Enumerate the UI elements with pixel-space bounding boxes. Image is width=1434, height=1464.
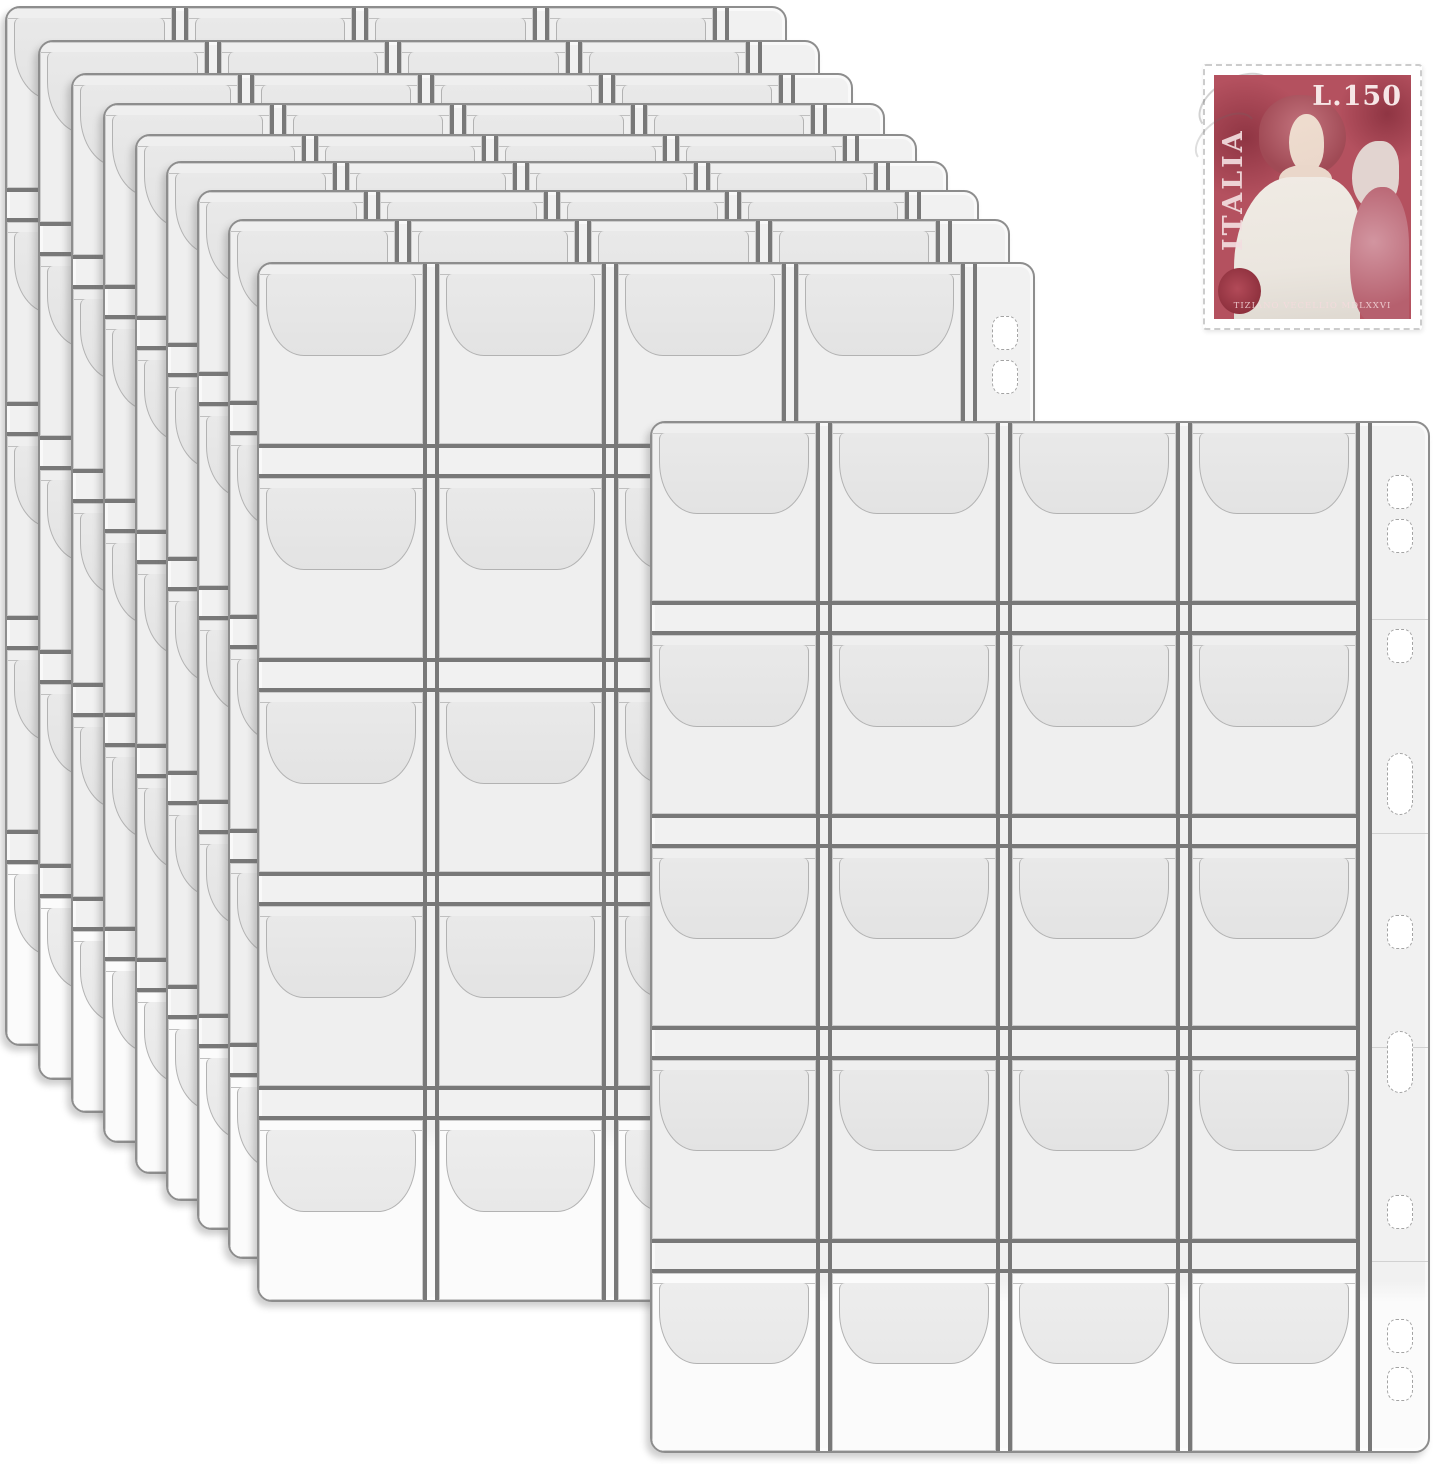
strip-seam [1372, 619, 1428, 620]
pocket [618, 264, 782, 444]
column-divider [996, 423, 1012, 1451]
column-divider [1176, 423, 1192, 1451]
pocket [1192, 848, 1356, 1026]
punch-hole [1387, 753, 1413, 815]
pocket-flap [266, 702, 416, 784]
pocket [439, 478, 603, 658]
column-divider [602, 264, 618, 1300]
italy-postage-stamp: ITALIA L.150 TIZIANO VECELLIO MDLXXVI [1203, 64, 1422, 330]
row-divider [652, 1239, 1356, 1273]
pocket-flap [446, 702, 596, 784]
pocket-flap [266, 274, 416, 356]
pocket [1012, 848, 1176, 1026]
pocket [259, 692, 423, 872]
pocket-flap [839, 645, 989, 726]
pocket [832, 635, 996, 813]
pocket-flap [446, 274, 596, 356]
pocket [832, 1060, 996, 1238]
pocket [259, 264, 423, 444]
pocket-flap [659, 433, 809, 514]
pocket [652, 1060, 816, 1238]
pocket [1012, 1273, 1176, 1451]
stamp-artwork: ITALIA L.150 TIZIANO VECELLIO MDLXXVI [1214, 75, 1411, 319]
pocket-flap [839, 433, 989, 514]
pocket [439, 264, 603, 444]
column-divider [423, 264, 439, 1300]
pocket-flap [1019, 433, 1169, 514]
pocket-flap [1199, 858, 1349, 939]
pocket [832, 848, 996, 1026]
punch-hole [1387, 519, 1413, 553]
pocket-page [650, 421, 1430, 1453]
pocket-flap [625, 274, 775, 356]
pocket-flap [1019, 858, 1169, 939]
punch-hole [992, 360, 1018, 394]
pocket [259, 478, 423, 658]
product-photo: ITALIA L.150 TIZIANO VECELLIO MDLXXVI [0, 0, 1434, 1464]
pocket [439, 692, 603, 872]
stamp-denomination: L.150 [1312, 81, 1402, 112]
binder-strip [1372, 423, 1428, 1451]
row-divider [652, 814, 1356, 848]
pocket [832, 423, 996, 601]
pocket [1012, 423, 1176, 601]
pocket [439, 906, 603, 1086]
pocket [1012, 1060, 1176, 1238]
pocket [1192, 1273, 1356, 1451]
pocket-flap [839, 1070, 989, 1151]
pocket-flap [266, 916, 416, 998]
pocket [439, 1120, 603, 1300]
pocket [798, 264, 962, 444]
pocket-flap [446, 1130, 596, 1212]
pocket [652, 848, 816, 1026]
punch-hole [1387, 915, 1413, 949]
row-divider [652, 1026, 1356, 1060]
punch-hole [992, 316, 1018, 350]
pocket [1192, 1060, 1356, 1238]
pocket [652, 635, 816, 813]
pocket-flap [1199, 433, 1349, 514]
pocket-flap [1199, 1283, 1349, 1364]
stamp-country-label: ITALIA [1218, 128, 1249, 251]
punch-hole [1387, 1367, 1413, 1401]
row-divider [652, 601, 1356, 635]
pocket-flap [266, 1130, 416, 1212]
punch-hole [1387, 475, 1413, 509]
pocket-flap [659, 1283, 809, 1364]
strip-divider [1356, 423, 1372, 1451]
pocket [259, 906, 423, 1086]
pocket-flap [805, 274, 955, 356]
pocket [652, 423, 816, 601]
pocket-flap [446, 488, 596, 570]
pocket-flap [1199, 1070, 1349, 1151]
pocket-flap [659, 645, 809, 726]
pocket-flap [1199, 645, 1349, 726]
pocket-flap [1019, 645, 1169, 726]
pocket [1192, 635, 1356, 813]
pocket-flap [266, 488, 416, 570]
stamp-figure-drapery [1350, 187, 1409, 319]
punch-hole [1387, 1319, 1413, 1353]
pocket-flap [839, 1283, 989, 1364]
punch-hole [1387, 1031, 1413, 1093]
pocket [259, 1120, 423, 1300]
pocket-grid [652, 423, 1356, 1451]
strip-seam [1372, 833, 1428, 834]
pocket-flap [659, 1070, 809, 1151]
punch-hole [1387, 629, 1413, 663]
stamp-caption: TIZIANO VECELLIO MDLXXVI [1214, 301, 1411, 311]
pocket [1192, 423, 1356, 601]
strip-seam [1372, 1261, 1428, 1262]
pocket [1012, 635, 1176, 813]
pocket-flap [1019, 1070, 1169, 1151]
pocket-flap [1019, 1283, 1169, 1364]
column-divider [816, 423, 832, 1451]
pocket-flap [446, 916, 596, 998]
pocket [832, 1273, 996, 1451]
pocket-flap [659, 858, 809, 939]
stamp-figure-face [1289, 114, 1324, 173]
punch-hole [1387, 1195, 1413, 1229]
pocket [652, 1273, 816, 1451]
pocket-flap [839, 858, 989, 939]
